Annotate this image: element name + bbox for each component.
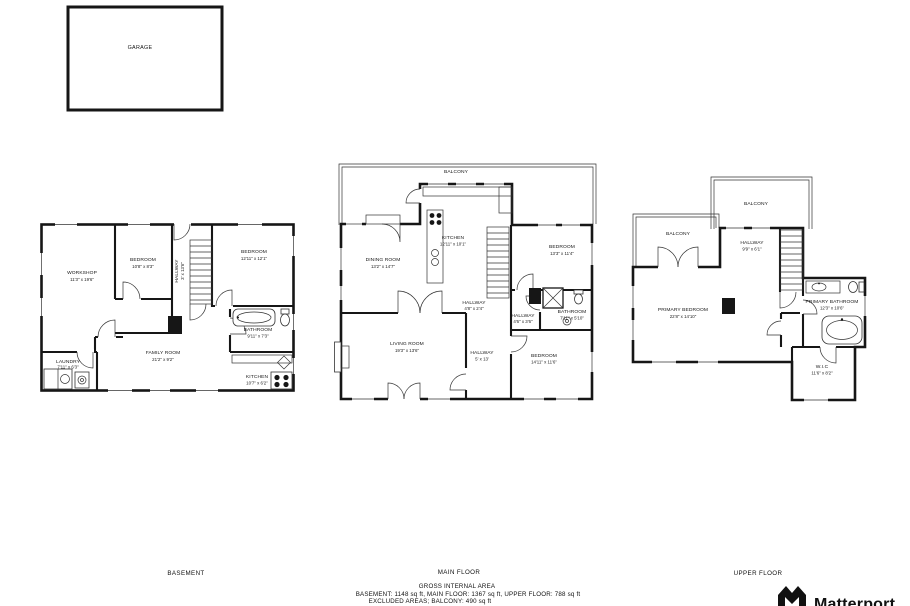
living-dims: 19'3" x 13'6" [395, 348, 420, 353]
wic-label: W.I.C [816, 364, 829, 370]
primary-bathroom-dims: 12'3" x 10'6" [820, 306, 845, 311]
main-hallway3-dims: 5' x 13' [475, 357, 489, 362]
dining-label: DINING ROOM [366, 257, 401, 263]
main-floorplan: BALCONY DINING ROOM 13'2" x 14'7" KITCHE… [335, 164, 597, 402]
main-hallway1-dims: 4'8" x 2'4" [464, 306, 484, 311]
main-bathroom-label: BATHROOM [558, 309, 587, 315]
kitchen-dims: 10'7" x 6'2" [246, 381, 268, 386]
bedroom2-label: BEDROOM [241, 249, 267, 255]
family-room-dims: 21'2" x 9'2" [152, 357, 174, 362]
main-balcony-label: BALCONY [444, 169, 469, 175]
hallway-dims: 3' x 13'6" [180, 262, 185, 280]
toilet-icon [281, 309, 290, 326]
garage-label: GARAGE [128, 45, 153, 51]
laundry-sink-icon [75, 372, 89, 388]
gross-internal-area-title: GROSS INTERNAL AREA [419, 583, 495, 590]
main-bedroom1-label: BEDROOM [549, 244, 575, 250]
main-closet-block [529, 288, 541, 304]
upper-floorplan: BALCONY BALCONY HALLWAY 9'9" x 6'1" PRIM… [630, 177, 868, 403]
primary-bedroom-label: PRIMARY BEDROOM [658, 307, 708, 313]
matterport-logo-text: Matterport [814, 596, 895, 606]
basement-chimney [168, 316, 182, 333]
excluded-areas-line: EXCLUDED AREAS; BALCONY: 490 sq ft [369, 598, 492, 605]
floorplan-page: GARAGE [0, 0, 910, 606]
main-bedroom2-label: BEDROOM [531, 353, 557, 359]
upper-floor-label: UPPER FLOOR [734, 570, 783, 577]
bedroom1-dims: 10'8" x 8'3" [132, 264, 154, 269]
main-bedroom2-dims: 14'11" x 11'6" [531, 360, 557, 365]
upper-balcony-top-label: BALCONY [744, 201, 769, 207]
main-kitchen-dims: 12'11" x 10'1" [440, 242, 467, 247]
bathroom-dims: 9'11" x 7'3" [247, 334, 269, 339]
basement-floor-label: BASEMENT [167, 570, 204, 577]
living-label: LIVING ROOM [390, 341, 424, 347]
workshop-dims: 11'3" x 19'6" [70, 277, 94, 282]
bathroom-label: BATHROOM [244, 327, 273, 333]
primary-bedroom-dims: 22'8" x 14'10" [670, 314, 697, 319]
main-bathroom-dims: 7'11" x 5'10" [560, 316, 584, 321]
primary-bathroom-label: PRIMARY BATHROOM [806, 299, 859, 305]
matterport-logo: Matterport [775, 585, 895, 606]
dining-dims: 13'2" x 14'7" [371, 264, 396, 269]
basement-floorplan: WORKSHOP 11'3" x 19'6" BEDROOM 10'8" x 8… [39, 221, 297, 393]
bedroom2-dims: 12'11" x 12'1" [241, 256, 268, 261]
matterport-logo-icon [775, 585, 809, 606]
upper-toilet-icon [849, 282, 865, 293]
shower-icon [543, 288, 563, 308]
main-toilet-icon [574, 290, 583, 304]
floorplan-drawing: GARAGE [0, 0, 910, 606]
wic-dims: 11'6" x 8'2" [811, 371, 833, 376]
main-hallway2-dims: 4'6" x 3'6" [513, 319, 533, 324]
stove-icon [271, 372, 292, 389]
main-bedroom1-dims: 13'3" x 11'4" [550, 251, 574, 256]
washer-dryer-icon [44, 369, 72, 389]
family-room-label: FAMILY ROOM [146, 350, 181, 356]
areas-summary-line: BASEMENT: 1148 sq ft, MAIN FLOOR: 1367 s… [356, 591, 581, 598]
bathtub-icon [233, 309, 275, 326]
main-floor-label: MAIN FLOOR [438, 569, 481, 576]
upper-hallway-label: HALLWAY [740, 240, 764, 246]
upper-hallway-dims: 9'9" x 6'1" [742, 247, 762, 252]
upper-chimney [722, 298, 735, 314]
main-kitchen-label: KITCHEN [442, 235, 465, 241]
laundry-dims: 7'11" x 6'3" [57, 365, 79, 370]
workshop-label: WORKSHOP [67, 270, 97, 276]
kitchen-label: KITCHEN [246, 374, 269, 380]
bedroom1-label: BEDROOM [130, 257, 156, 263]
main-hallway3-label: HALLWAY [470, 350, 494, 356]
garage-plan: GARAGE [68, 7, 222, 110]
upper-balcony-left-label: BALCONY [666, 231, 691, 237]
upper-bathtub-icon [822, 316, 862, 344]
